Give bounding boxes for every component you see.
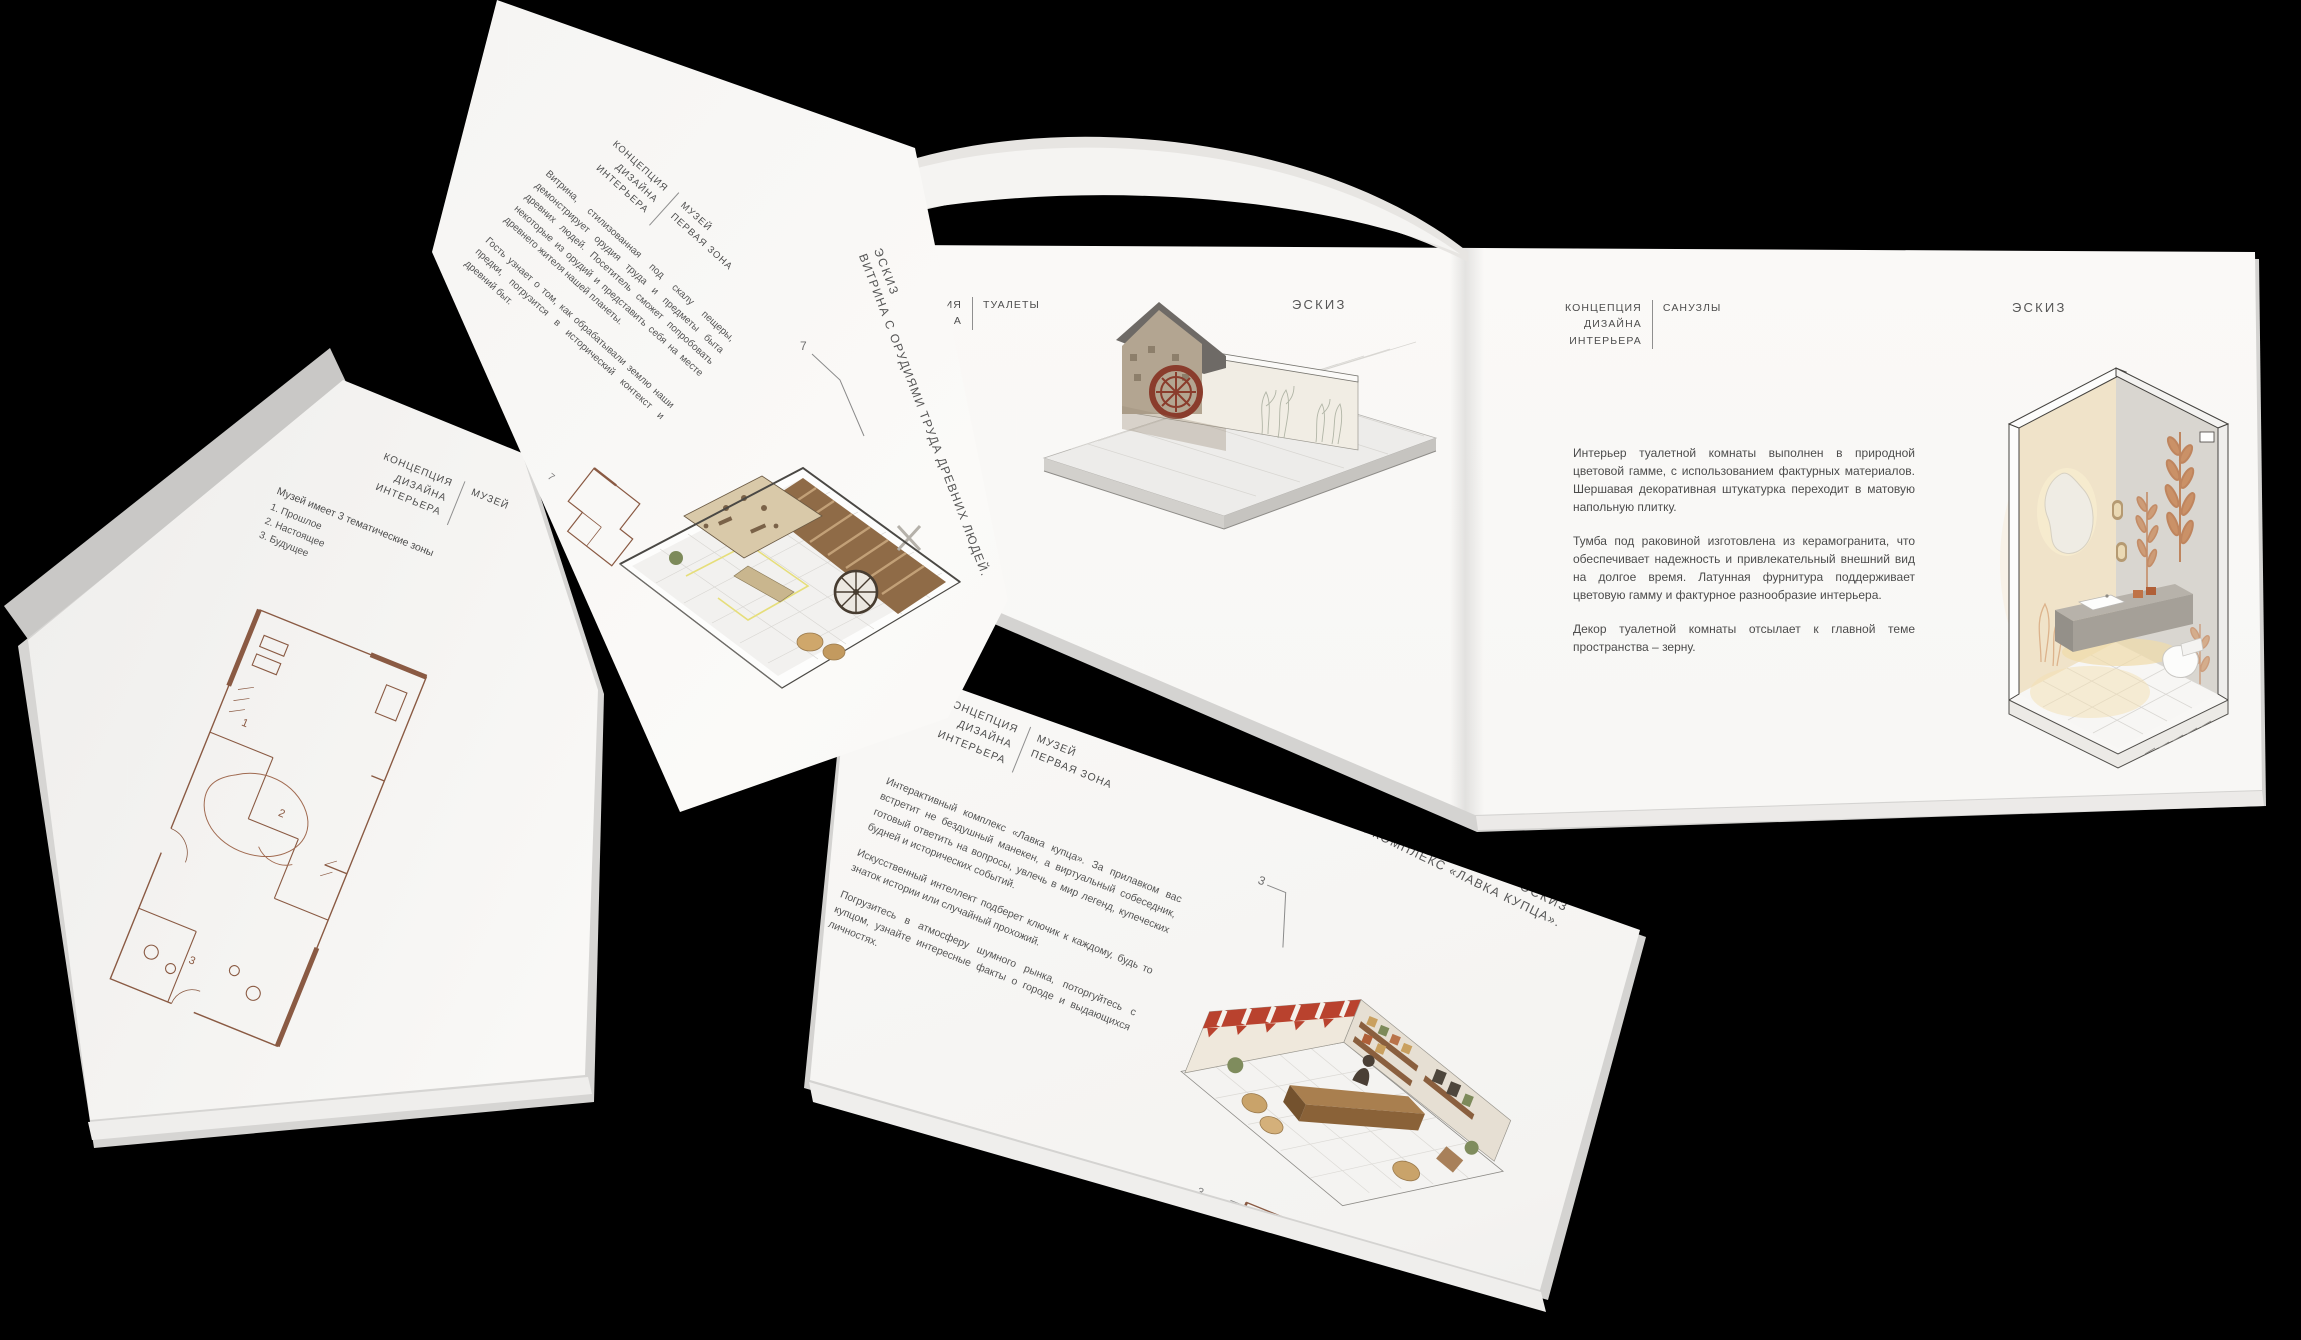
vitrina-plan-number: 7 [545,471,556,483]
vitrina-callout: 7 [792,328,922,458]
vitrina-isometric-illustration [598,446,978,731]
turning-page-content: КОНЦЕПЦИЯ ДИЗАЙНА ИНТЕРЬЕРА МУЗЕЙ ПЕРВАЯ… [453,118,795,456]
callout-number: 7 [800,339,807,353]
turning-page-curl [0,0,2301,1340]
brochure-mockup-scene: КОНЦЕПЦИЯ ДИЗАЙНА ИНТЕРЬЕРА МУЗЕЙ Музей … [0,0,2301,1340]
